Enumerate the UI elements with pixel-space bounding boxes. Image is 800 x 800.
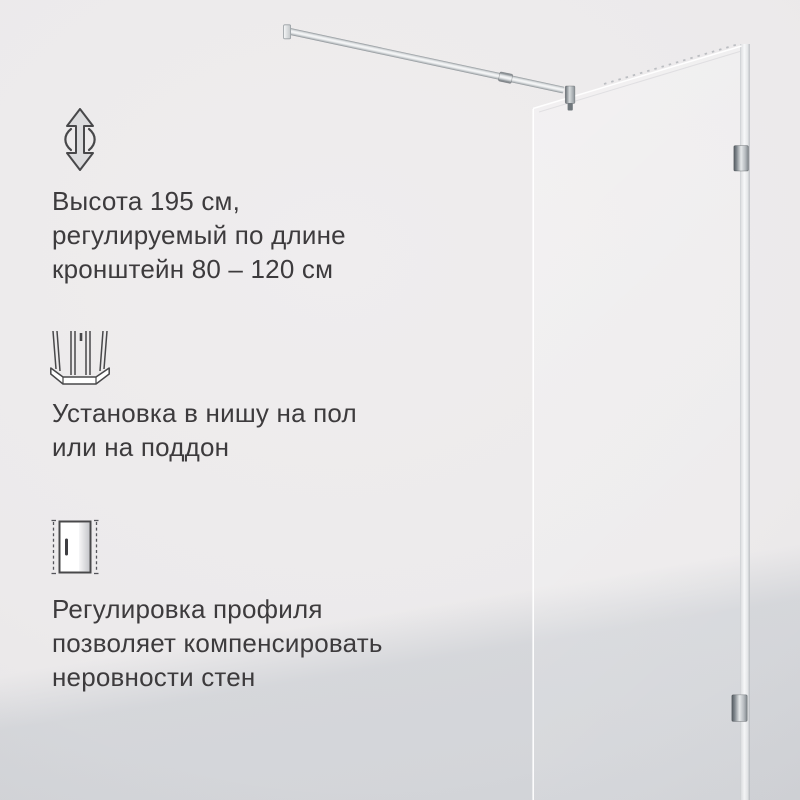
- product-infographic: Высота 195 см, регулируемый по длине кро…: [0, 0, 800, 800]
- feature-caption-line: Высота 195 см,: [52, 184, 346, 218]
- feature-height: Высота 195 см, регулируемый по длине кро…: [52, 108, 346, 286]
- feature-caption-line: неровности стен: [52, 660, 383, 694]
- support-bar-glass-clamp: [565, 86, 575, 104]
- glass-bracket-bottom: [732, 695, 747, 722]
- glass-bracket-top: [734, 146, 749, 171]
- feature-caption: Установка в нишу на пол или на поддон: [52, 396, 357, 464]
- profile-adjustment-icon: [51, 518, 99, 576]
- support-bar: [286, 26, 565, 95]
- support-bar-sleeve: [498, 72, 513, 84]
- feature-caption: Высота 195 см, регулируемый по длине кро…: [52, 184, 346, 286]
- height-adjustable-icon: [57, 108, 103, 171]
- support-bar-clamp-nub: [568, 103, 573, 111]
- feature-caption-line: регулируемый по длине: [52, 218, 346, 252]
- feature-installation: Установка в нишу на пол или на поддон: [52, 331, 357, 464]
- feature-caption-line: позволяет компенсировать: [52, 626, 383, 660]
- glass-panel: [533, 46, 742, 800]
- feature-profile-adjustment: Регулировка профиля позволяет компенсиро…: [52, 518, 383, 694]
- support-bar-wall-mount: [284, 25, 291, 39]
- feature-caption-line: Установка в нишу на пол: [52, 396, 357, 430]
- feature-caption: Регулировка профиля позволяет компенсиро…: [52, 592, 383, 694]
- feature-caption-line: кронштейн 80 – 120 см: [52, 252, 346, 286]
- niche-floor-tray-installation-icon: [50, 331, 110, 388]
- feature-caption-line: Регулировка профиля: [52, 592, 383, 626]
- feature-caption-line: или на поддон: [52, 430, 357, 464]
